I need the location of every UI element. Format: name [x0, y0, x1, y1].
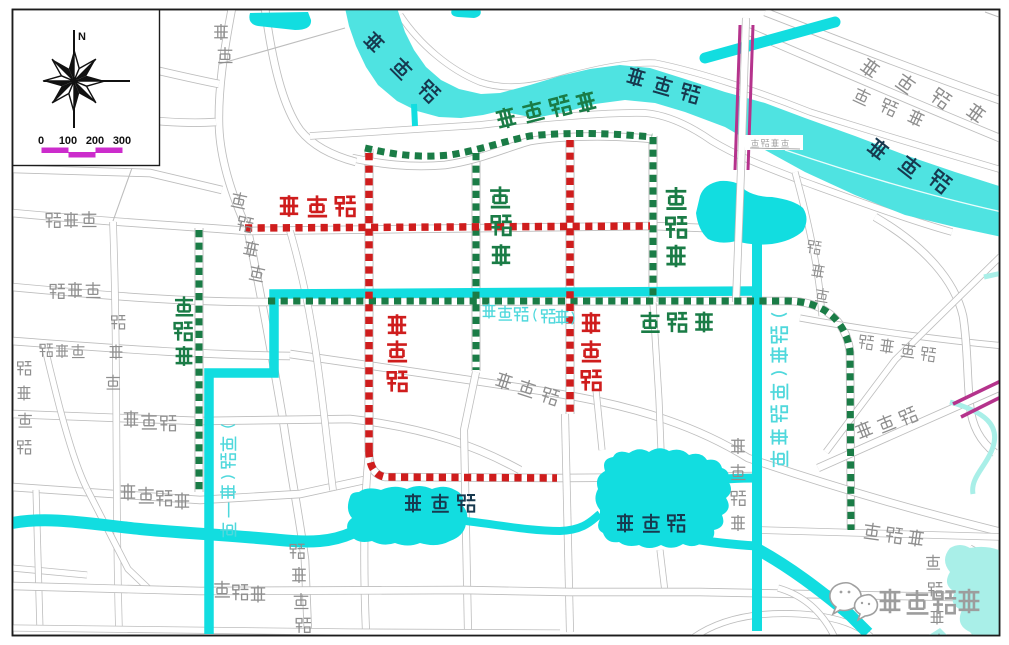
- svg-text:N: N: [78, 31, 86, 43]
- svg-text:100: 100: [59, 135, 77, 147]
- svg-text:0: 0: [38, 135, 44, 147]
- svg-text:200: 200: [86, 135, 104, 147]
- svg-text:300: 300: [113, 135, 131, 147]
